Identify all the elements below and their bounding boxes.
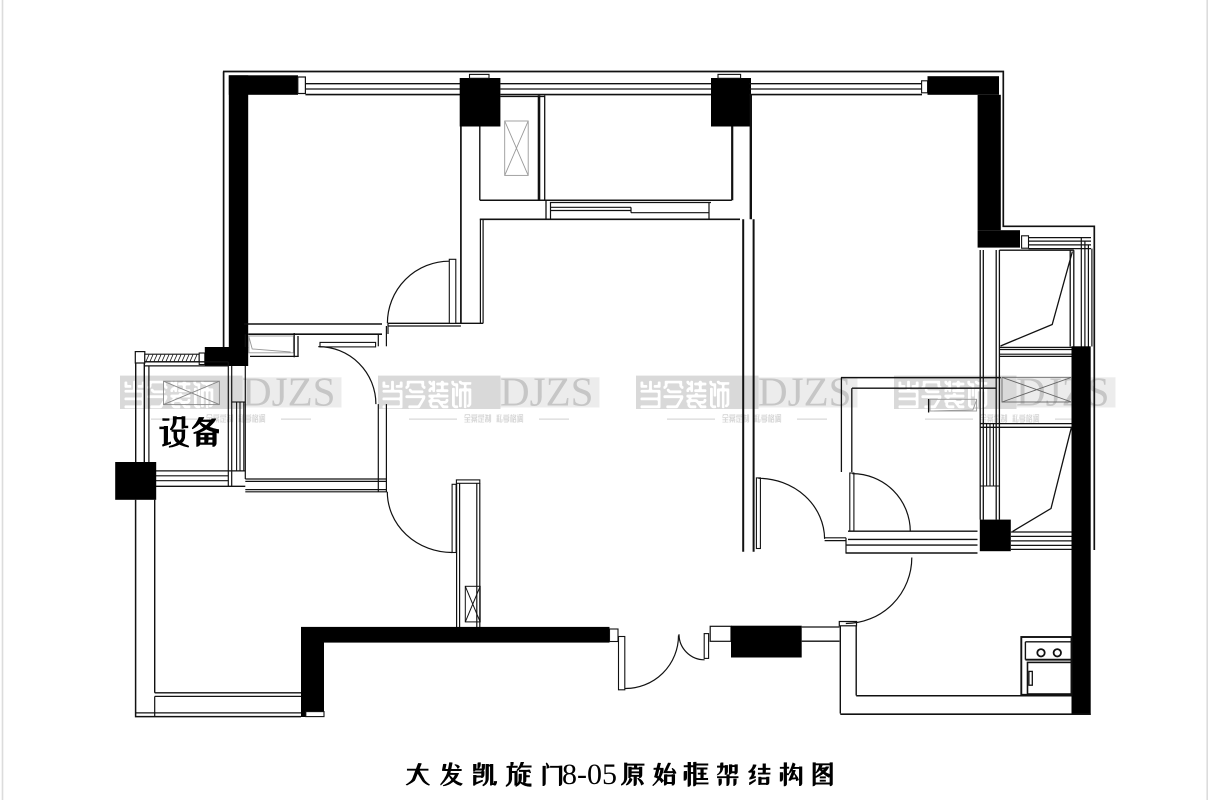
svg-text:8-05: 8-05 [562,758,617,791]
